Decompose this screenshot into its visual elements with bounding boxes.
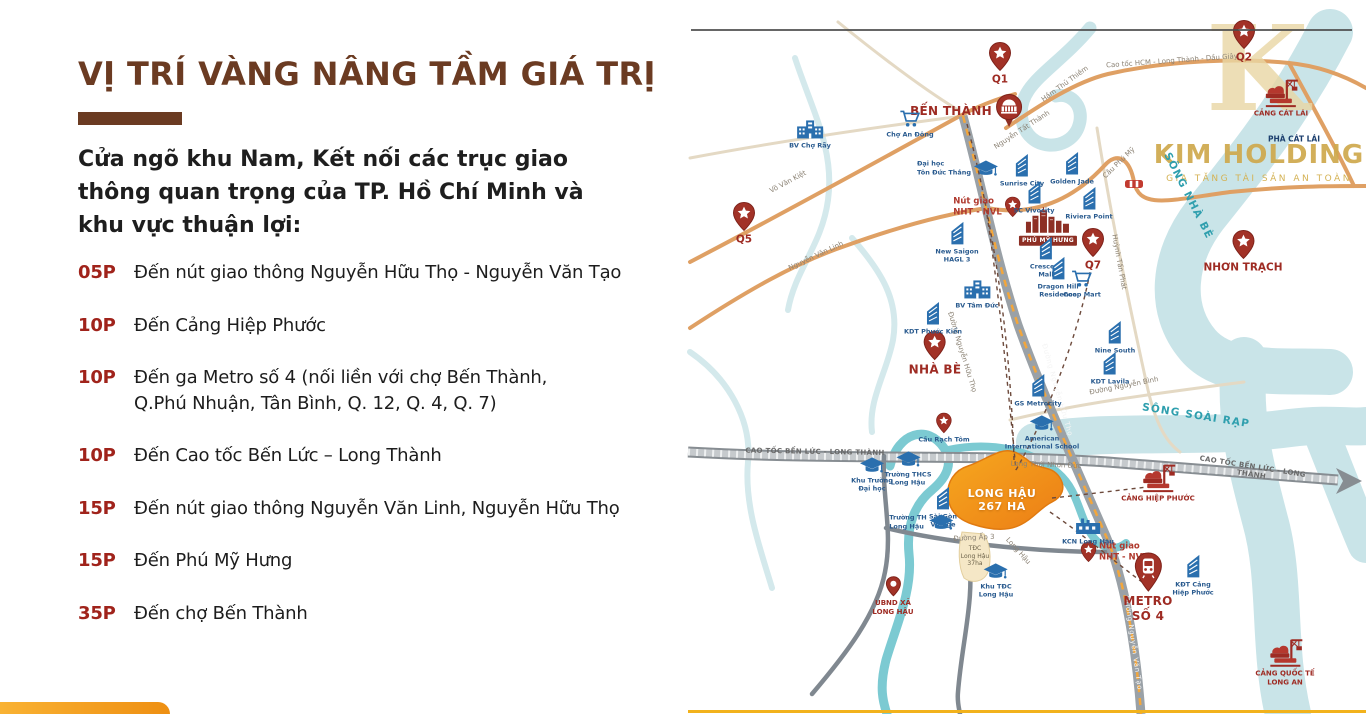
project-site <box>948 451 1063 582</box>
bottom-accent-line <box>688 710 1366 713</box>
top-divider-line <box>691 29 1352 31</box>
nguyen-huu-tho-road <box>963 116 1141 714</box>
brand-name: KIM HOLDING <box>1152 140 1366 170</box>
minor-roads <box>690 22 1244 452</box>
tdc-long-hau-polygon <box>959 532 990 581</box>
brand-tagline: GIA TĂNG TÀI SẢN AN TOÀN <box>1152 174 1366 184</box>
brand-letter-watermark: K <box>1206 10 1309 128</box>
corner-accent-bar <box>0 702 170 714</box>
map-canvas <box>0 0 1366 714</box>
slide: VỊ TRÍ VÀNG NÂNG TẦM GIÁ TRỊ Cửa ngõ khu… <box>0 0 1366 714</box>
